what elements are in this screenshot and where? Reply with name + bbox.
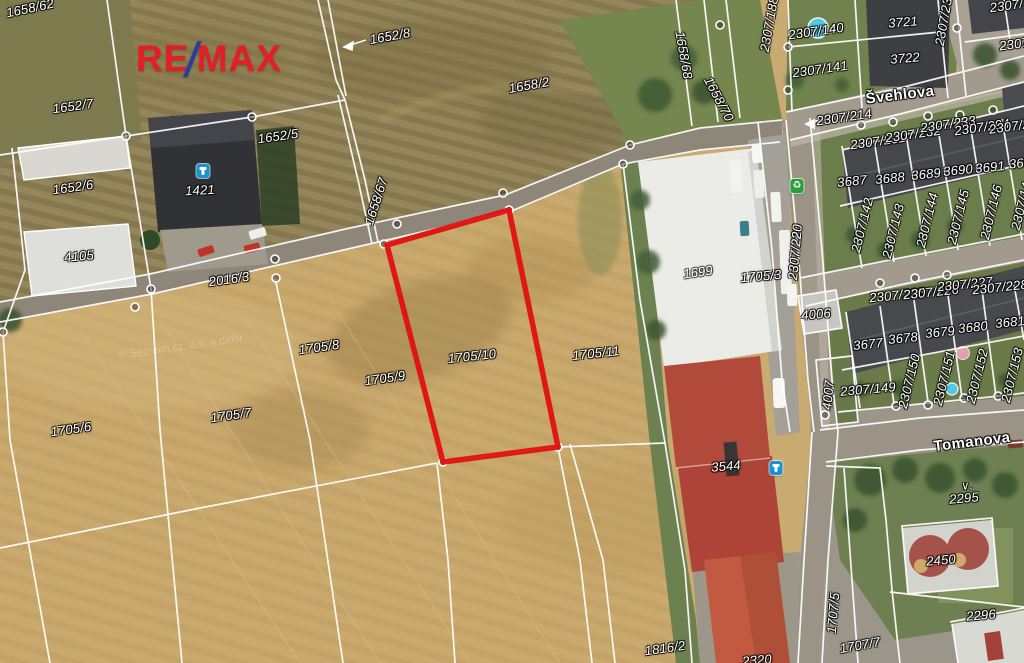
remax-logo-re: RE xyxy=(136,38,189,79)
parcel-label: 2307/214 xyxy=(815,107,872,128)
parcel-label: 2450 xyxy=(926,552,957,568)
parcel-label: 2307/140 xyxy=(787,21,844,42)
parcel-label: 1707/7 xyxy=(839,635,882,655)
parcel-label: 3681 xyxy=(995,314,1024,330)
parcel-label: 4105 xyxy=(64,248,95,264)
parcel-label: 1705/9 xyxy=(364,369,406,388)
parcel-label: 3688 xyxy=(875,170,906,186)
recycling-icon: ♻ xyxy=(791,179,804,193)
parcel-label: 2307/142 xyxy=(849,196,875,253)
parcel-label: 2307/149 xyxy=(840,380,897,398)
parcel-label: 2307/153 xyxy=(999,346,1024,403)
parcel-label: 1652/5 xyxy=(257,127,299,146)
parcel-label: 2295 xyxy=(949,490,980,506)
parcel-label: 2296 xyxy=(966,607,997,623)
parcel-label: 3678 xyxy=(888,330,919,346)
parcel-label: 1707/5 xyxy=(825,592,842,634)
parcel-label: 2307 xyxy=(998,35,1024,52)
parcel-label: 1652/7 xyxy=(52,97,94,116)
parcel-label: ∨. xyxy=(961,482,973,493)
parcel-label: 3689 xyxy=(911,166,942,182)
parcel-label: 2307/188 xyxy=(758,0,780,53)
parcel-label: 4006 xyxy=(801,306,832,322)
parcel-label: 2307/143 xyxy=(880,202,906,259)
parcel-label: 3544 xyxy=(711,458,742,474)
hydrant-icon xyxy=(770,461,783,475)
parcel-label: 2307/150 xyxy=(896,352,922,409)
parcel-label: 2307/146 xyxy=(978,183,1004,240)
parcel-label: 1658/62 xyxy=(5,0,55,19)
parcel-label: 2307/144 xyxy=(914,191,940,248)
hydrant-icon xyxy=(197,164,210,178)
remax-logo-max: MAX xyxy=(197,38,282,79)
parcel-label: 1652/6 xyxy=(52,178,94,197)
parcel-label: 2307/14 xyxy=(1009,181,1024,231)
labels-layer: 1658/621652/81658/21652/71652/51652/6142… xyxy=(0,0,1024,663)
street-label: Švehlova xyxy=(865,83,935,106)
map-canvas[interactable]: 1658/621652/81658/21652/71652/51652/6142… xyxy=(0,0,1024,663)
parcel-label: 2307/220 xyxy=(786,224,804,281)
parcel-label: 1652/8 xyxy=(369,26,412,46)
parcel-label: 1705/11 xyxy=(572,344,621,362)
parcel-label: 2307/152 xyxy=(964,347,990,404)
parcel-label: 3677 xyxy=(853,336,884,352)
parcel-label: 1705/6 xyxy=(50,420,92,439)
parcel-label: 3680 xyxy=(958,319,989,335)
parcel-label: 1658/67 xyxy=(362,176,389,226)
parcel-label: 2307/151 xyxy=(931,349,957,406)
street-label: Tomanova xyxy=(933,430,1011,454)
parcel-label: 3721 xyxy=(888,14,919,30)
parcel-label: 1658/68 xyxy=(673,30,694,80)
parcel-label: 1705/7 xyxy=(210,406,252,425)
parcel-label: 1705/3 xyxy=(740,268,782,285)
parcel-label: 1705/8 xyxy=(298,338,340,357)
parcel-label: 3690 xyxy=(943,162,974,178)
parcel-label: 1816/2 xyxy=(644,639,686,658)
parcel-label: 2307/145 xyxy=(945,188,971,245)
parcel-label: 4007 xyxy=(820,380,836,411)
parcel-label: 2307/141 xyxy=(791,59,848,80)
parcel-label: 3679 xyxy=(925,324,956,340)
parcel-label: 1699 xyxy=(682,263,713,280)
parcel-label: 1658/70 xyxy=(702,75,736,124)
parcel-label: 2016/3 xyxy=(208,270,250,289)
parcel-label: 2320 xyxy=(742,652,773,663)
parcel-label: 2307/1 xyxy=(989,0,1024,14)
parcel-label: 3691 xyxy=(975,159,1006,175)
remax-logo: RE/MAX xyxy=(136,40,282,78)
parcel-label: 3722 xyxy=(890,50,921,66)
parcel-label: 3687 xyxy=(837,173,868,189)
parcel-label: 1705/10 xyxy=(447,347,496,365)
parcel-label: 1421 xyxy=(185,183,215,198)
parcel-label: 2307/238 xyxy=(933,0,955,47)
parcel-label: 1658/2 xyxy=(508,75,551,95)
parcel-label: 369 xyxy=(1008,155,1024,170)
